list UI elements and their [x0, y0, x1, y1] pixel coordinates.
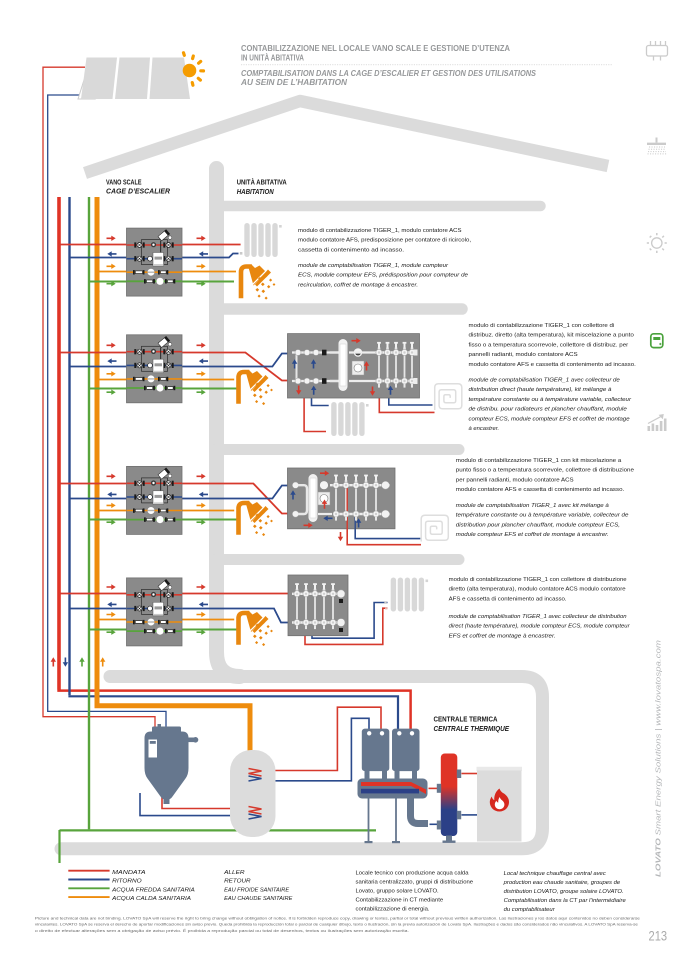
svg-text:UNITÀ ABITATIVA: UNITÀ ABITATIVA	[237, 177, 287, 186]
svg-text:module de comptabilisation TIG: module de comptabilisation TIGER_1, modu…	[298, 263, 449, 269]
svg-text:recirculation, coffret de mont: recirculation, coffret de montage à enca…	[298, 282, 418, 288]
svg-text:ALLER: ALLER	[223, 870, 245, 876]
svg-text:EAU FROIDE SANITAIRE: EAU FROIDE SANITAIRE	[224, 887, 289, 893]
svg-text:compteur ECS, module compteur: compteur ECS, module compteur EFS et cof…	[469, 416, 631, 422]
svg-text:CENTRALE TERMICA: CENTRALE TERMICA	[434, 717, 498, 724]
svg-text:du comptabilisateur: du comptabilisateur	[504, 907, 556, 913]
svg-text:vinculantes. LOVATO SpA se res: vinculantes. LOVATO SpA se reserva el de…	[35, 923, 638, 927]
svg-text:direct (haute température), mo: direct (haute température), module compt…	[449, 624, 631, 630]
svg-text:modulo di contabilizzazione TI: modulo di contabilizzazione TIGER_1, mod…	[298, 228, 462, 234]
svg-text:MANDATA: MANDATA	[112, 870, 145, 876]
svg-text:modulo contatore AFS, predispo: modulo contatore AFS, predisposizione pe…	[298, 238, 471, 244]
svg-text:Lovato, gruppo solare LOVATO.: Lovato, gruppo solare LOVATO.	[356, 888, 440, 894]
svg-text:ECS, module compteur EFS, préd: ECS, module compteur EFS, prédisposition…	[298, 273, 469, 279]
svg-text:CONTABILIZZAZIONE NEL LOCALE V: CONTABILIZZAZIONE NEL LOCALE VANO SCALE …	[241, 44, 510, 53]
svg-text:contabilizzazione di energia.: contabilizzazione di energia.	[356, 906, 430, 912]
svg-text:cassetta di contenimento ad in: cassetta di contenimento ad incasso.	[298, 247, 404, 253]
svg-text:sanitaria centralizzato, grupp: sanitaria centralizzato, gruppi di distr…	[356, 879, 474, 885]
svg-text:distribution pour plancher cha: distribution pour plancher chauffant, mo…	[456, 522, 620, 528]
svg-text:AFS e cassetta di contenimento: AFS e cassetta di contenimento ad incass…	[449, 596, 567, 602]
svg-text:o direito de efectuar alteraçõ: o direito de efectuar alterações sem a o…	[35, 928, 409, 933]
svg-text:IN UNITÀ ABITATIVA: IN UNITÀ ABITATIVA	[241, 53, 304, 62]
svg-text:module de comptabilisation TIG: module de comptabilisation TIGER_1 avec …	[449, 614, 628, 620]
svg-text:EFS et coffret de montage à en: EFS et coffret de montage à encastrer.	[449, 633, 556, 639]
svg-text:ACQUA FREDDA SANITARIA: ACQUA FREDDA SANITARIA	[111, 887, 195, 893]
svg-text:ACQUA CALDA SANITARIA: ACQUA CALDA SANITARIA	[111, 896, 191, 902]
svg-text:distribution LOVATO, groupe so: distribution LOVATO, groupe solaire LOVA…	[504, 889, 624, 895]
svg-text:per pannelli radianti, modulo: per pannelli radianti, modulo contatore …	[456, 477, 574, 483]
svg-text:COMPTABILISATION DANS LA CAGE: COMPTABILISATION DANS LA CAGE D’ESCALIER…	[241, 69, 537, 78]
svg-text:module de comptabilisation TIG: module de comptabilisation TIGER_1 avec …	[469, 378, 621, 384]
svg-text:HABITATION: HABITATION	[237, 189, 275, 196]
svg-text:modulo contatore AFS e cassett: modulo contatore AFS e cassetta di conte…	[456, 487, 625, 493]
svg-text:EAU CHAUDE SANITAIRE: EAU CHAUDE SANITAIRE	[224, 896, 292, 902]
svg-text:Locale tecnico con produzione: Locale tecnico con produzione acqua cald…	[356, 870, 470, 876]
svg-text:Comptabilisation dans la CT pa: Comptabilisation dans la CT par l’interm…	[504, 898, 627, 904]
svg-text:distribution direct (haute tem: distribution direct (haute température),…	[469, 387, 613, 393]
svg-text:Local technique chauffage cent: Local technique chauffage central avec	[504, 871, 606, 877]
svg-text:production eau chaude sanitair: production eau chaude sanitaire, groupes…	[503, 880, 621, 886]
svg-text:module compteur EFS et coffret: module compteur EFS et coffret de montag…	[456, 532, 609, 538]
svg-text:pannelli radianti, modulo cont: pannelli radianti, modulo contatore ACS	[469, 352, 578, 358]
svg-text:CAGE D’ESCALIER: CAGE D’ESCALIER	[106, 188, 170, 195]
svg-text:Contabilizzazione in CT median: Contabilizzazione in CT mediante	[356, 897, 444, 903]
svg-text:punto fisso o a temperatura sc: punto fisso o a temperatura scorrevole, …	[456, 468, 635, 474]
svg-text:diretto (alta temperatura), mo: diretto (alta temperatura), modulo conta…	[449, 587, 627, 593]
svg-text:AU SEIN DE L’HABITATION: AU SEIN DE L’HABITATION	[240, 78, 347, 87]
svg-text:LOVATO Smart Energy Solutions: LOVATO Smart Energy Solutions | www.lova…	[654, 640, 663, 877]
svg-text:modulo di contabilizzazione TI: modulo di contabilizzazione TIGER_1 con …	[449, 577, 628, 583]
svg-text:CENTRALE THERMIQUE: CENTRALE THERMIQUE	[434, 726, 510, 733]
svg-text:de distribu. pour radiateurs e: de distribu. pour radiateurs et plancher…	[469, 407, 628, 413]
svg-text:VANO SCALE: VANO SCALE	[106, 179, 142, 186]
svg-text:modulo di contabilizzazione TI: modulo di contabilizzazione TIGER_1 con …	[456, 458, 622, 464]
svg-text:RETOUR: RETOUR	[224, 879, 251, 885]
svg-text:distribuz. diretto (alta tempe: distribuz. diretto (alta temperatura), k…	[469, 333, 635, 339]
svg-text:à encastrer.: à encastrer.	[469, 426, 500, 432]
svg-text:température constante ou à tem: température constante ou à température v…	[456, 513, 629, 519]
svg-text:213: 213	[649, 928, 668, 943]
svg-text:fisso o a temperatura scorrevo: fisso o a temperatura scorrevole, collet…	[469, 342, 629, 348]
svg-text:module de comptabilisation TIG: module de comptabilisation TIGER_1 avec …	[456, 503, 610, 509]
svg-text:température constante ou à tem: température constante ou à température v…	[469, 397, 633, 403]
svg-text:modulo contatore AFS e cassett: modulo contatore AFS e cassetta di conte…	[469, 362, 637, 368]
svg-text:Picture and technical data ar: Picture and technical data are not bindi…	[35, 916, 640, 920]
svg-text:RITORNO: RITORNO	[112, 879, 142, 885]
svg-text:modulo di contabilizzazione TI: modulo di contabilizzazione TIGER_1 con …	[469, 323, 615, 329]
